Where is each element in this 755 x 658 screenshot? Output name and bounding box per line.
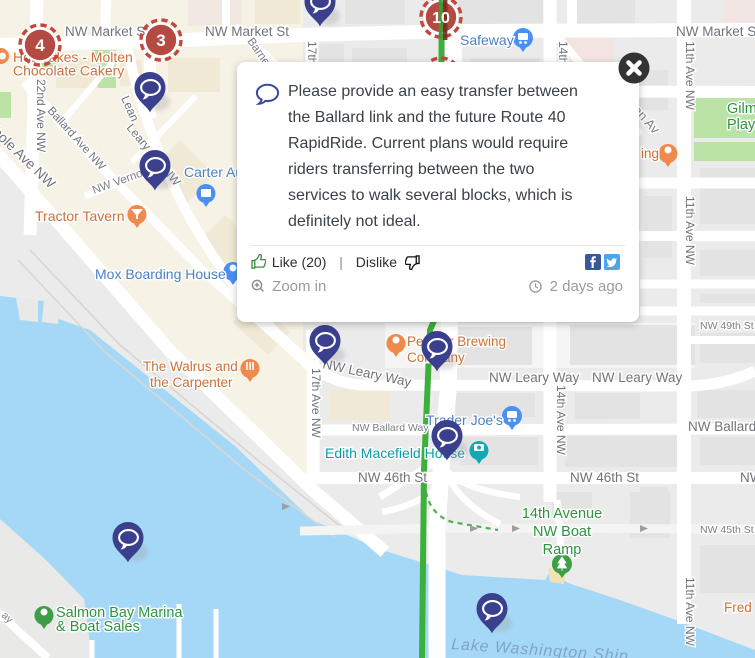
svg-text:14th: 14th	[556, 41, 570, 64]
svg-text:11th Ave NW: 11th Ave NW	[683, 577, 697, 647]
svg-text:3: 3	[156, 31, 165, 50]
svg-text:NW Leary Way: NW Leary Way	[489, 370, 580, 385]
svg-text:NW 46th St: NW 46th St	[358, 470, 427, 485]
svg-text:NW Market St: NW Market St	[205, 24, 289, 39]
svg-text:NW 49th St: NW 49th St	[700, 320, 754, 332]
svg-text:22nd Ave NW: 22nd Ave NW	[34, 79, 48, 153]
svg-text:NW Boat: NW Boat	[533, 524, 591, 540]
svg-text:ing: ing	[641, 146, 659, 161]
svg-text:The Walrus and: The Walrus and	[143, 359, 238, 374]
svg-text:14th Avenue: 14th Avenue	[522, 506, 602, 522]
svg-text:10: 10	[432, 10, 450, 27]
svg-text:NW Ballard: NW Ballard	[688, 419, 755, 434]
svg-text:NW Ballard Way: NW Ballard Way	[352, 422, 429, 434]
svg-text:Playground: Playground	[727, 117, 755, 133]
svg-text:Tractor Tavern: Tractor Tavern	[35, 208, 124, 224]
svg-text:& Boat Sales: & Boat Sales	[56, 619, 140, 635]
svg-text:NW Market St: NW Market St	[676, 24, 755, 39]
svg-text:NW Market St: NW Market St	[65, 24, 149, 39]
svg-text:NW 45th St: NW 45th St	[700, 524, 754, 536]
svg-text:Chocolate Cakery: Chocolate Cakery	[13, 63, 124, 79]
svg-text:17th: 17th	[305, 41, 319, 64]
svg-text:NW 46th St: NW 46th St	[570, 470, 639, 485]
svg-text:the Carpenter: the Carpenter	[150, 375, 233, 390]
svg-text:Ramp: Ramp	[543, 542, 582, 558]
svg-text:14th Ave NW: 14th Ave NW	[554, 385, 568, 455]
svg-text:NW: NW	[740, 470, 755, 485]
svg-text:Gilman: Gilman	[727, 101, 755, 117]
svg-text:Safeway: Safeway	[460, 32, 514, 48]
svg-text:11th Ave NW: 11th Ave NW	[683, 196, 697, 266]
svg-text:11th Ave NW: 11th Ave NW	[683, 41, 697, 111]
svg-text:17th Ave NW: 17th Ave NW	[309, 368, 323, 438]
svg-text:Mox Boarding House: Mox Boarding House	[95, 266, 226, 282]
svg-text:4: 4	[35, 36, 45, 55]
svg-text:NW Leary Way: NW Leary Way	[592, 370, 683, 385]
svg-text:Fred M: Fred M	[724, 600, 755, 615]
